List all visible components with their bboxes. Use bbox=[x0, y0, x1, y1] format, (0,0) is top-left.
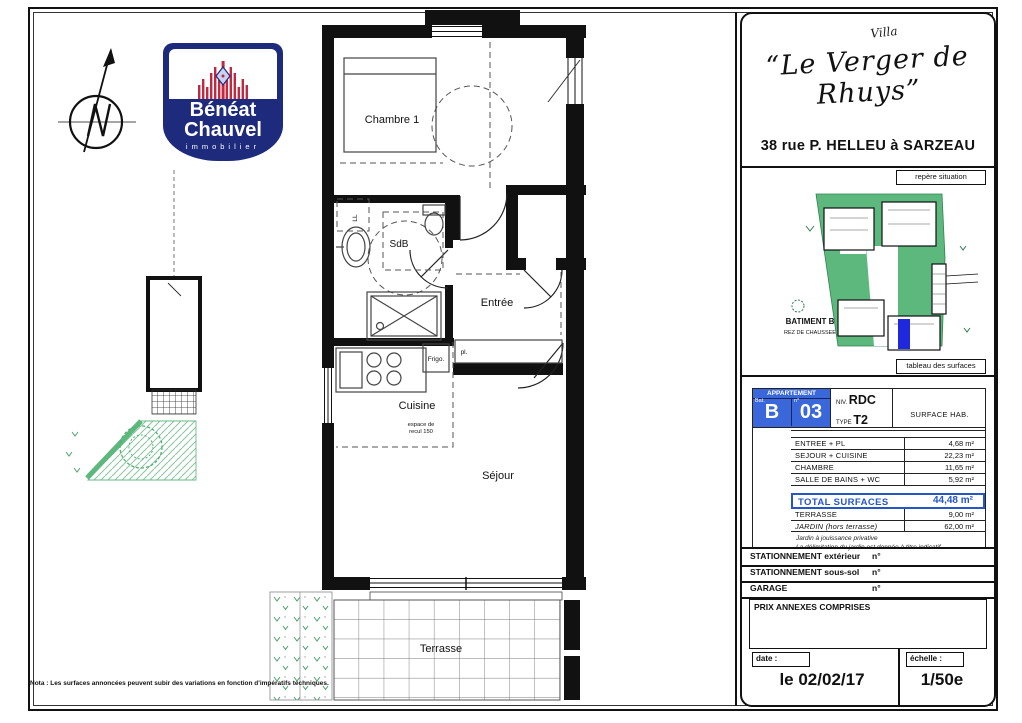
surface-label: CHAMBRE bbox=[791, 463, 834, 472]
scale-label-box: échelle : bbox=[906, 652, 964, 667]
room-label-terrasse: Terrasse bbox=[420, 643, 462, 655]
divider bbox=[742, 166, 994, 168]
logo-emblem-panel bbox=[169, 49, 277, 99]
footer-divider bbox=[898, 648, 900, 705]
surface-value: 22,23 m² bbox=[904, 450, 985, 461]
apartment-id-block: APPARTEMENT Bat. B n° 03 bbox=[753, 389, 831, 428]
logo-name-line2: Chauvel bbox=[163, 119, 283, 142]
room-label-entree: Entrée bbox=[481, 297, 513, 309]
surface-value: 4,68 m² bbox=[904, 438, 985, 449]
surface-rows: ENTREE + PL 4,68 m² SEJOUR + CUISINE 22,… bbox=[791, 430, 985, 553]
niveau-label: NIV. bbox=[836, 400, 847, 406]
garden-area bbox=[66, 170, 200, 480]
repere-situation-label: repère situation bbox=[896, 170, 986, 185]
parking-number: n° bbox=[872, 581, 881, 596]
parking-label: STATIONNEMENT extérieur bbox=[742, 551, 860, 561]
parking-row-exterieur: STATIONNEMENT extérieur n° bbox=[742, 547, 994, 567]
label-recul-2: recul 150 bbox=[409, 429, 433, 435]
surface-value: 9,00 m² bbox=[904, 509, 985, 520]
kitchen-counter bbox=[336, 348, 426, 392]
closet bbox=[455, 340, 562, 363]
room-label-sdb: SdB bbox=[390, 239, 409, 250]
parking-label: STATIONNEMENT sous-sol bbox=[742, 567, 859, 577]
surface-label: JARDIN (hors terrasse) bbox=[791, 522, 877, 531]
batiment-value: B bbox=[753, 401, 791, 424]
jardin-note-1: Jardin à jouissance privative bbox=[796, 534, 985, 543]
room-label-cuisine: Cuisine bbox=[399, 400, 436, 412]
agency-logo: Bénéat Chauvel immobilier bbox=[163, 43, 283, 161]
table-row: TERRASSE 9,00 m² bbox=[791, 509, 985, 521]
type-value: T2 bbox=[853, 413, 868, 427]
site-building-4 bbox=[888, 316, 940, 350]
table-row: SEJOUR + CUISINE 22,23 m² bbox=[791, 450, 985, 462]
cathedral-spires-icon bbox=[169, 49, 277, 99]
parking-number: n° bbox=[872, 549, 881, 564]
prix-annexes-box: PRIX ANNEXES COMPRISES bbox=[749, 599, 987, 649]
total-label: TOTAL SURFACES bbox=[793, 497, 889, 508]
table-row: SALLE DE BAINS + WC 5,92 m² bbox=[791, 474, 985, 486]
numero-cell: n° 03 bbox=[792, 398, 830, 426]
date-label-box: date : bbox=[752, 652, 810, 667]
numero-value: 03 bbox=[792, 401, 830, 424]
label-washing-machine: LL bbox=[352, 214, 359, 222]
type-label: TYPE bbox=[836, 420, 852, 426]
parking-row-garage: GARAGE n° bbox=[742, 581, 994, 599]
surface-value: 62,00 m² bbox=[904, 521, 985, 532]
label-closet: pl. bbox=[461, 349, 468, 356]
north-compass-icon bbox=[58, 48, 136, 152]
surface-label: ENTREE + PL bbox=[791, 439, 845, 448]
highlighted-unit bbox=[898, 319, 910, 349]
total-surfaces-row: TOTAL SURFACES 44,48 m² bbox=[791, 493, 985, 509]
site-batiment-label: BATIMENT B bbox=[786, 317, 835, 326]
site-plan: BATIMENT B REZ DE CHAUSSEE bbox=[746, 188, 990, 352]
label-fridge: Frigo. bbox=[428, 356, 445, 363]
garden-hatch bbox=[88, 421, 196, 480]
entry-porch bbox=[518, 195, 566, 258]
paved-patch bbox=[152, 390, 196, 414]
divider bbox=[742, 375, 994, 377]
site-niveau-label: REZ DE CHAUSSEE bbox=[784, 330, 836, 336]
footnote: Nota : Les surfaces annoncées peuvent su… bbox=[30, 680, 340, 687]
table-row: ENTREE + PL 4,68 m² bbox=[791, 438, 985, 450]
parking-number: n° bbox=[872, 565, 881, 580]
surface-label: SALLE DE BAINS + WC bbox=[791, 475, 880, 484]
bed bbox=[344, 58, 436, 152]
date-value: le 02/02/17 bbox=[748, 670, 896, 690]
table-row: JARDIN (hors terrasse) 62,00 m² bbox=[791, 521, 985, 533]
annex-building bbox=[148, 278, 200, 390]
plan-sheet: Chambre 1 SdB Entrée Cuisine Séjour Terr… bbox=[0, 0, 1022, 723]
surface-column-header: SURFACE HAB. bbox=[893, 389, 986, 428]
residence-address: 38 rue P. HELLEU à SARZEAU bbox=[742, 138, 994, 154]
surface-label: TERRASSE bbox=[791, 510, 837, 519]
total-value: 44,48 m² bbox=[933, 495, 983, 507]
label-recul-1: espace de bbox=[408, 422, 435, 428]
residence-title: “Le Verger de Rhuys” bbox=[741, 39, 996, 114]
site-structure bbox=[932, 264, 946, 314]
niveau-value: RDC bbox=[849, 393, 876, 407]
table-row: CHAMBRE 11,65 m² bbox=[791, 462, 985, 474]
logo-tagline: immobilier bbox=[163, 142, 283, 151]
surface-label: SEJOUR + CUISINE bbox=[791, 451, 868, 460]
room-label-chambre: Chambre 1 bbox=[365, 114, 419, 126]
prix-annexes-label: PRIX ANNEXES COMPRISES bbox=[754, 602, 870, 612]
scale-value: 1/50e bbox=[902, 670, 982, 690]
surface-value: 5,92 m² bbox=[904, 474, 985, 485]
parking-label: GARAGE bbox=[742, 583, 787, 593]
surfaces-table: APPARTEMENT Bat. B n° 03 NIV. RDC TYPE T… bbox=[752, 388, 986, 548]
table-row-empty bbox=[791, 430, 985, 438]
site-building-1 bbox=[824, 208, 874, 250]
room-label-sejour: Séjour bbox=[482, 470, 514, 482]
title-block-panel: Villa “Le Verger de Rhuys” 38 rue P. HEL… bbox=[740, 12, 996, 707]
site-building-3 bbox=[838, 300, 884, 336]
surface-value: 11,65 m² bbox=[904, 462, 985, 473]
tableau-surfaces-label: tableau des surfaces bbox=[896, 359, 986, 374]
batiment-cell: Bat. B bbox=[753, 398, 792, 426]
niveau-type-cell: NIV. RDC TYPE T2 bbox=[831, 389, 893, 428]
